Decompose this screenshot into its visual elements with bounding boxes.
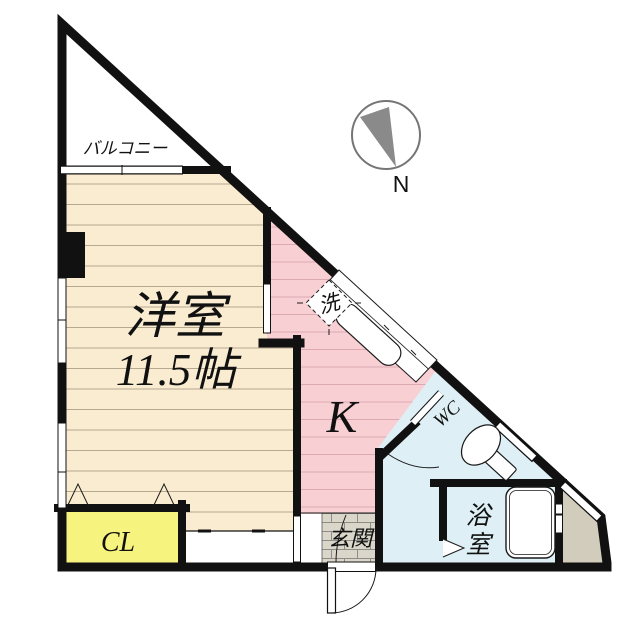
floor-plan-page: N バルコニー 洋室 11.5帖 K 洗 WC 浴 室 CL 玄関 bbox=[0, 0, 640, 640]
entrance-step-floor bbox=[302, 514, 322, 564]
balcony-label: バルコニー bbox=[83, 139, 169, 158]
hall-floor bbox=[185, 531, 293, 564]
bathtub-icon bbox=[506, 487, 555, 558]
kitchen-label: K bbox=[326, 391, 360, 442]
entrance-label: 玄関 bbox=[328, 526, 375, 551]
main-room-label: 洋室 bbox=[125, 288, 231, 344]
compass-north-label: N bbox=[393, 171, 410, 197]
bath-label-char1: 浴 bbox=[465, 503, 493, 530]
main-room-size-label: 11.5帖 bbox=[116, 345, 242, 395]
pillar bbox=[62, 232, 85, 278]
compass: N bbox=[352, 101, 420, 197]
closet-label: CL bbox=[101, 527, 135, 558]
bath-label-char2: 室 bbox=[465, 531, 493, 559]
floor-plan-drawing: N バルコニー 洋室 11.5帖 K 洗 WC 浴 室 CL 玄関 bbox=[0, 0, 640, 640]
